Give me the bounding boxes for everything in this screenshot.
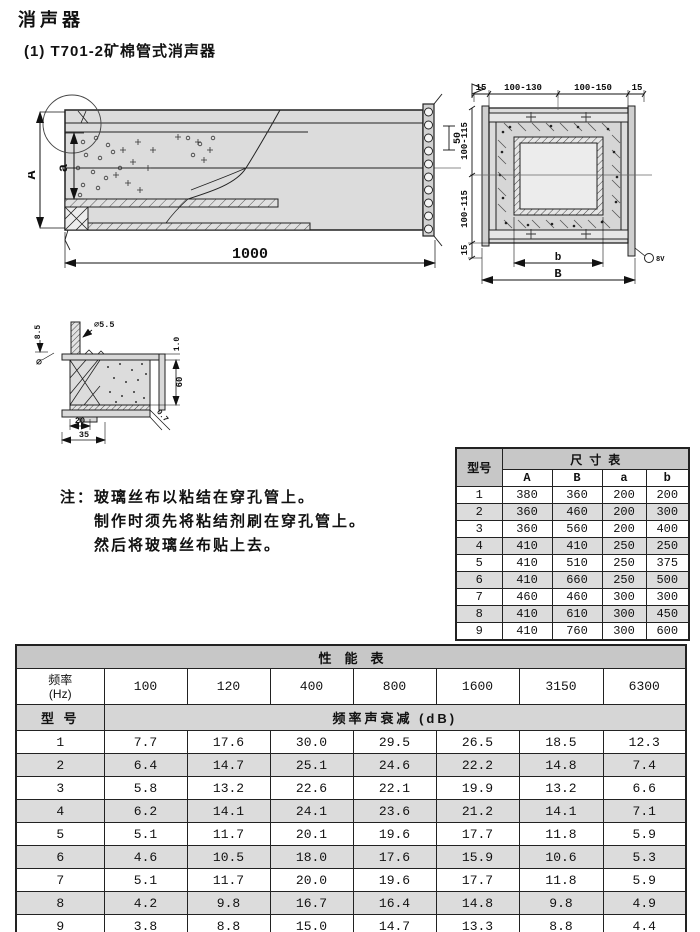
dim-cell: 250 bbox=[602, 555, 646, 572]
dim-cell: 410 bbox=[502, 572, 552, 589]
perf-cell: 6.6 bbox=[603, 777, 686, 800]
perf-cell: 29.5 bbox=[353, 731, 436, 754]
dim-cell: 660 bbox=[552, 572, 602, 589]
dim-left-2: 100-115 bbox=[460, 190, 470, 228]
perf-cell: 3.8 bbox=[104, 915, 187, 932]
perf-cell: 5.1 bbox=[104, 823, 187, 846]
perf-cell: 6.2 bbox=[104, 800, 187, 823]
freq-unit: (Hz) bbox=[17, 687, 104, 701]
table-row: 性能表 bbox=[16, 645, 686, 669]
note-line: 制作时须先将粘结剂刷在穿孔管上。 bbox=[94, 510, 366, 534]
perf-cell: 14.1 bbox=[519, 800, 603, 823]
table-row: 26.414.725.124.622.214.87.4 bbox=[16, 754, 686, 777]
dim-cell: 7 bbox=[456, 589, 502, 606]
document-page: 消声器 (1) T701-2矿棉管式消声器 bbox=[0, 0, 700, 932]
perf-cell: 8.8 bbox=[187, 915, 270, 932]
dim-left-3: 15 bbox=[460, 245, 470, 256]
dim-label-B: B bbox=[554, 267, 561, 281]
perf-cell: 4.9 bbox=[603, 892, 686, 915]
perf-cell: 5.9 bbox=[603, 823, 686, 846]
perf-cell: 6 bbox=[16, 846, 104, 869]
dim-cell: 1 bbox=[456, 487, 502, 504]
perf-cell: 14.1 bbox=[187, 800, 270, 823]
table-row: 8410610300450 bbox=[456, 606, 689, 623]
dim-cell: 250 bbox=[602, 538, 646, 555]
dim-top-4: 15 bbox=[632, 83, 643, 93]
detail-drawing: 8.5 ∅ ∅5.5 1.0 60 0.7 20 35 bbox=[28, 312, 218, 447]
dim-cell: 410 bbox=[502, 555, 552, 572]
freq-header-cell: 频率 (Hz) bbox=[16, 669, 104, 705]
dim-label-1000: 1000 bbox=[232, 246, 268, 263]
perf-cell: 30.0 bbox=[270, 731, 353, 754]
table-row: 频率 (Hz) 100 120 400 800 1600 3150 6300 bbox=[16, 669, 686, 705]
perf-cell: 22.1 bbox=[353, 777, 436, 800]
dim-cell: 500 bbox=[646, 572, 689, 589]
perf-cell: 14.8 bbox=[519, 754, 603, 777]
dim-cell: 2 bbox=[456, 504, 502, 521]
perf-cell: 17.6 bbox=[187, 731, 270, 754]
dim-cell: 410 bbox=[502, 538, 552, 555]
table-row: 9410760300600 bbox=[456, 623, 689, 641]
perf-cell: 11.7 bbox=[187, 869, 270, 892]
detail-structure bbox=[62, 322, 165, 422]
dim-cell: 8 bbox=[456, 606, 502, 623]
table-row: 型号 尺寸表 bbox=[456, 448, 689, 470]
perf-cell: 6.4 bbox=[104, 754, 187, 777]
dim-cell: 250 bbox=[646, 538, 689, 555]
perf-cell: 5.3 bbox=[603, 846, 686, 869]
dim-cell: 380 bbox=[502, 487, 552, 504]
stud-label: 8V bbox=[656, 256, 665, 264]
dim-top-1: 15 bbox=[476, 83, 487, 93]
perf-cell: 16.4 bbox=[353, 892, 436, 915]
dim-cell: 6 bbox=[456, 572, 502, 589]
freq-label: 频率 bbox=[17, 673, 104, 687]
dim-cell: 300 bbox=[602, 589, 646, 606]
perf-cell: 10.5 bbox=[187, 846, 270, 869]
perf-cell: 7.4 bbox=[603, 754, 686, 777]
table-row: 84.29.816.716.414.89.84.9 bbox=[16, 892, 686, 915]
dim-cell: 9 bbox=[456, 623, 502, 641]
perf-cell: 9.8 bbox=[187, 892, 270, 915]
perf-cell: 18.5 bbox=[519, 731, 603, 754]
note-line: 玻璃丝布以粘结在穿孔管上。 bbox=[94, 486, 366, 510]
attenuation-header: 频率声衰减 (dB) bbox=[104, 705, 686, 731]
table-row: 3360560200400 bbox=[456, 521, 689, 538]
dim-cell: 460 bbox=[552, 589, 602, 606]
dim-cell: 760 bbox=[552, 623, 602, 641]
freq-col: 1600 bbox=[436, 669, 519, 705]
perf-cell: 11.8 bbox=[519, 823, 603, 846]
perf-cell: 26.5 bbox=[436, 731, 519, 754]
note-line: 然后将玻璃丝布贴上去。 bbox=[94, 534, 366, 558]
perf-cell: 4 bbox=[16, 800, 104, 823]
dim-cell: 250 bbox=[602, 572, 646, 589]
perf-cell: 17.6 bbox=[353, 846, 436, 869]
table-row: 7460460300300 bbox=[456, 589, 689, 606]
dim-cell: 410 bbox=[502, 606, 552, 623]
perf-cell: 15.9 bbox=[436, 846, 519, 869]
table-row: 2360460200300 bbox=[456, 504, 689, 521]
dim-cell: 360 bbox=[552, 487, 602, 504]
dim-col-A: A bbox=[502, 470, 552, 487]
note-label: 注： bbox=[60, 486, 94, 558]
dim-left-1: 100-115 bbox=[460, 122, 470, 160]
perf-cell: 1 bbox=[16, 731, 104, 754]
dim-cell: 410 bbox=[552, 538, 602, 555]
table-row: 1380360200200 bbox=[456, 487, 689, 504]
section-subtitle: (1) T701-2矿棉管式消声器 bbox=[24, 40, 216, 61]
dim-label-a: a bbox=[56, 163, 72, 172]
dim-label-8-5: 8.5 bbox=[34, 325, 43, 340]
dim-cell: 360 bbox=[502, 521, 552, 538]
dim-cell: 450 bbox=[646, 606, 689, 623]
dim-col-B: B bbox=[552, 470, 602, 487]
table-row: 5410510250375 bbox=[456, 555, 689, 572]
dim-cell: 300 bbox=[602, 623, 646, 641]
fabrication-note: 注： 玻璃丝布以粘结在穿孔管上。 制作时须先将粘结剂刷在穿孔管上。 然后将玻璃丝… bbox=[60, 486, 366, 558]
perf-cell: 4.2 bbox=[104, 892, 187, 915]
perf-cell: 10.6 bbox=[519, 846, 603, 869]
table-row: 55.111.720.119.617.711.85.9 bbox=[16, 823, 686, 846]
perf-cell: 13.2 bbox=[519, 777, 603, 800]
dim-label-1-0: 1.0 bbox=[173, 337, 182, 352]
dim-cell: 300 bbox=[602, 606, 646, 623]
perf-cell: 13.2 bbox=[187, 777, 270, 800]
dim-cell: 460 bbox=[502, 589, 552, 606]
freq-col: 3150 bbox=[519, 669, 603, 705]
dim-col-a: a bbox=[602, 470, 646, 487]
perf-cell: 15.0 bbox=[270, 915, 353, 932]
perf-cell: 25.1 bbox=[270, 754, 353, 777]
dim-label-b: b bbox=[555, 252, 562, 264]
dim-top-2: 100-130 bbox=[504, 83, 542, 93]
dim-cell: 400 bbox=[646, 521, 689, 538]
perf-cell: 19.6 bbox=[353, 869, 436, 892]
casing bbox=[482, 106, 635, 256]
perf-cell: 22.2 bbox=[436, 754, 519, 777]
side-view-drawing: A a 1000 50 bbox=[28, 80, 463, 295]
dim-cell: 360 bbox=[502, 504, 552, 521]
perf-cell: 17.7 bbox=[436, 823, 519, 846]
perf-cell: 19.9 bbox=[436, 777, 519, 800]
perf-cell: 24.1 bbox=[270, 800, 353, 823]
perf-cell: 8.8 bbox=[519, 915, 603, 932]
perf-cell: 4.6 bbox=[104, 846, 187, 869]
perf-cell: 23.6 bbox=[353, 800, 436, 823]
performance-table: 性能表 频率 (Hz) 100 120 400 800 1600 3150 63… bbox=[15, 644, 687, 932]
perf-cell: 19.6 bbox=[353, 823, 436, 846]
dim-cell: 300 bbox=[646, 504, 689, 521]
dim-cell: 300 bbox=[646, 589, 689, 606]
perf-cell: 11.7 bbox=[187, 823, 270, 846]
freq-col: 120 bbox=[187, 669, 270, 705]
perf-cell: 13.3 bbox=[436, 915, 519, 932]
table-row: 17.717.630.029.526.518.512.3 bbox=[16, 731, 686, 754]
perf-cell: 7.1 bbox=[603, 800, 686, 823]
perf-cell: 5.8 bbox=[104, 777, 187, 800]
dim-cell: 460 bbox=[552, 504, 602, 521]
model-header: 型 号 bbox=[16, 705, 104, 731]
dim-cell: 410 bbox=[502, 623, 552, 641]
dim-cell: 610 bbox=[552, 606, 602, 623]
dim-cell: 375 bbox=[646, 555, 689, 572]
stud-callout: 8V bbox=[635, 248, 665, 264]
dim-cell: 4 bbox=[456, 538, 502, 555]
perf-cell: 3 bbox=[16, 777, 104, 800]
perf-cell: 5.1 bbox=[104, 869, 187, 892]
perf-cell: 22.6 bbox=[270, 777, 353, 800]
table-row: 4410410250250 bbox=[456, 538, 689, 555]
perf-cell: 8 bbox=[16, 892, 104, 915]
dim-cell: 200 bbox=[602, 504, 646, 521]
perf-cell: 12.3 bbox=[603, 731, 686, 754]
perf-cell: 2 bbox=[16, 754, 104, 777]
muffler-body bbox=[65, 110, 461, 250]
diameter-symbol: ∅ bbox=[36, 358, 42, 369]
perf-cell: 24.6 bbox=[353, 754, 436, 777]
table-row: 35.813.222.622.119.913.26.6 bbox=[16, 777, 686, 800]
table-row: 64.610.518.017.615.910.65.3 bbox=[16, 846, 686, 869]
perf-cell: 9.8 bbox=[519, 892, 603, 915]
table-row: 75.111.720.019.617.711.85.9 bbox=[16, 869, 686, 892]
dimension-table: 型号 尺寸表 A B a b 1380360200200 23604602003… bbox=[455, 447, 690, 641]
freq-col: 100 bbox=[104, 669, 187, 705]
dim-label-A: A bbox=[28, 170, 40, 179]
dim-table-model-header: 型号 bbox=[456, 448, 502, 487]
perf-cell: 4.4 bbox=[603, 915, 686, 932]
freq-col: 6300 bbox=[603, 669, 686, 705]
dim-col-b: b bbox=[646, 470, 689, 487]
dim-cell: 510 bbox=[552, 555, 602, 572]
dim-label-0-7: 0.7 bbox=[154, 409, 169, 424]
perf-cell: 14.8 bbox=[436, 892, 519, 915]
perf-cell: 21.2 bbox=[436, 800, 519, 823]
perf-cell: 9 bbox=[16, 915, 104, 932]
perf-cell: 5 bbox=[16, 823, 104, 846]
dim-cell: 200 bbox=[646, 487, 689, 504]
note-lines: 玻璃丝布以粘结在穿孔管上。 制作时须先将粘结剂刷在穿孔管上。 然后将玻璃丝布贴上… bbox=[94, 486, 366, 558]
dim-cell: 200 bbox=[602, 521, 646, 538]
dim-top-3: 100-150 bbox=[574, 83, 612, 93]
table-row: 46.214.124.123.621.214.17.1 bbox=[16, 800, 686, 823]
dim-cell: 560 bbox=[552, 521, 602, 538]
perf-cell: 7.7 bbox=[104, 731, 187, 754]
table-row: 型 号 频率声衰减 (dB) bbox=[16, 705, 686, 731]
dim-cell: 3 bbox=[456, 521, 502, 538]
dim-cell: 5 bbox=[456, 555, 502, 572]
dim-cell: 200 bbox=[602, 487, 646, 504]
dim-table-title: 尺寸表 bbox=[502, 448, 689, 470]
freq-col: 400 bbox=[270, 669, 353, 705]
perf-cell: 18.0 bbox=[270, 846, 353, 869]
dim-label-35: 35 bbox=[79, 430, 89, 440]
freq-col: 800 bbox=[353, 669, 436, 705]
perf-cell: 20.0 bbox=[270, 869, 353, 892]
dim-label-20: 20 bbox=[75, 416, 85, 426]
perf-cell: 20.1 bbox=[270, 823, 353, 846]
dim-cell: 600 bbox=[646, 623, 689, 641]
perf-cell: 11.8 bbox=[519, 869, 603, 892]
page-title: 消声器 bbox=[18, 6, 84, 32]
table-row: 6410660250500 bbox=[456, 572, 689, 589]
perf-cell: 7 bbox=[16, 869, 104, 892]
dim-label-60: 60 bbox=[175, 377, 185, 388]
dim-label-hole-dia: ∅5.5 bbox=[94, 320, 114, 330]
perf-cell: 16.7 bbox=[270, 892, 353, 915]
perf-cell: 14.7 bbox=[353, 915, 436, 932]
perf-cell: 17.7 bbox=[436, 869, 519, 892]
table-row: 93.88.815.014.713.38.84.4 bbox=[16, 915, 686, 932]
cross-section-drawing: 8V 15 100-130 100-150 15 100-115 100-115… bbox=[456, 80, 696, 295]
perf-cell: 5.9 bbox=[603, 869, 686, 892]
perf-table-title: 性能表 bbox=[16, 645, 686, 669]
perf-cell: 14.7 bbox=[187, 754, 270, 777]
flange bbox=[423, 94, 442, 246]
